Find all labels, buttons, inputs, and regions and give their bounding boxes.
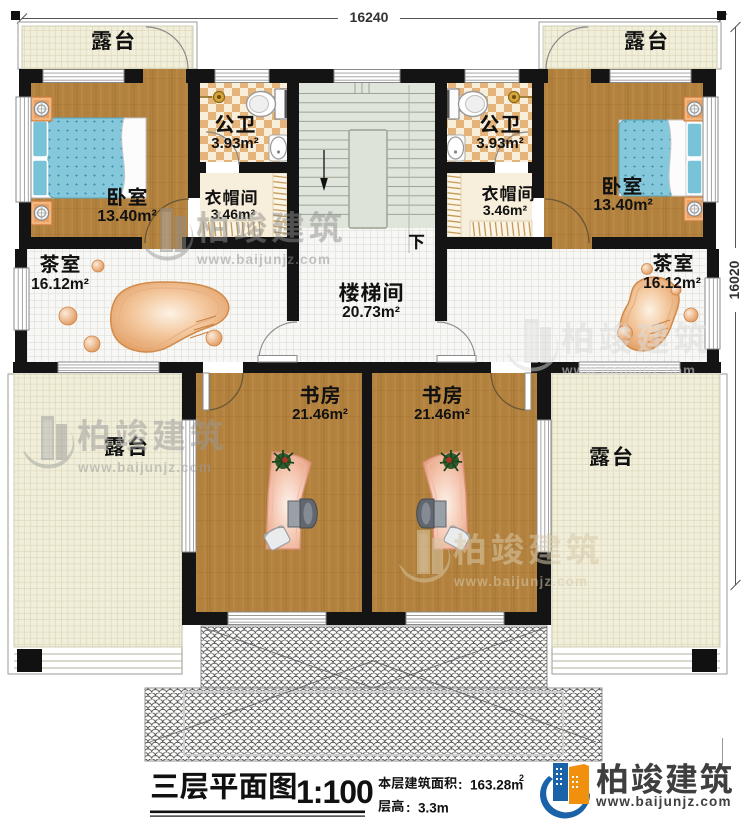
svg-text:16240: 16240 xyxy=(350,9,389,25)
svg-text:21.46m²: 21.46m² xyxy=(414,406,470,423)
svg-text:1:100: 1:100 xyxy=(296,774,373,810)
svg-text::: : xyxy=(458,777,463,792)
svg-text:3.93m²: 3.93m² xyxy=(476,135,524,152)
svg-text:3.3m: 3.3m xyxy=(418,801,449,816)
svg-text:16020: 16020 xyxy=(726,260,742,299)
svg-text:2: 2 xyxy=(519,773,524,783)
svg-text:www.baijunjz.com: www.baijunjz.com xyxy=(595,794,732,809)
svg-text:20.73m²: 20.73m² xyxy=(342,304,400,321)
svg-text:16.12m²: 16.12m² xyxy=(643,275,701,292)
svg-text:21.46m²: 21.46m² xyxy=(292,406,348,423)
svg-text:3.46m²: 3.46m² xyxy=(483,202,528,218)
svg-text:3.93m²: 3.93m² xyxy=(211,135,259,152)
svg-text::: : xyxy=(406,800,411,815)
svg-text:13.40m²: 13.40m² xyxy=(593,197,653,214)
svg-text:16.12m²: 16.12m² xyxy=(31,276,89,293)
svg-text:163.28m: 163.28m xyxy=(470,778,523,793)
svg-text:13.40m²: 13.40m² xyxy=(97,208,157,225)
